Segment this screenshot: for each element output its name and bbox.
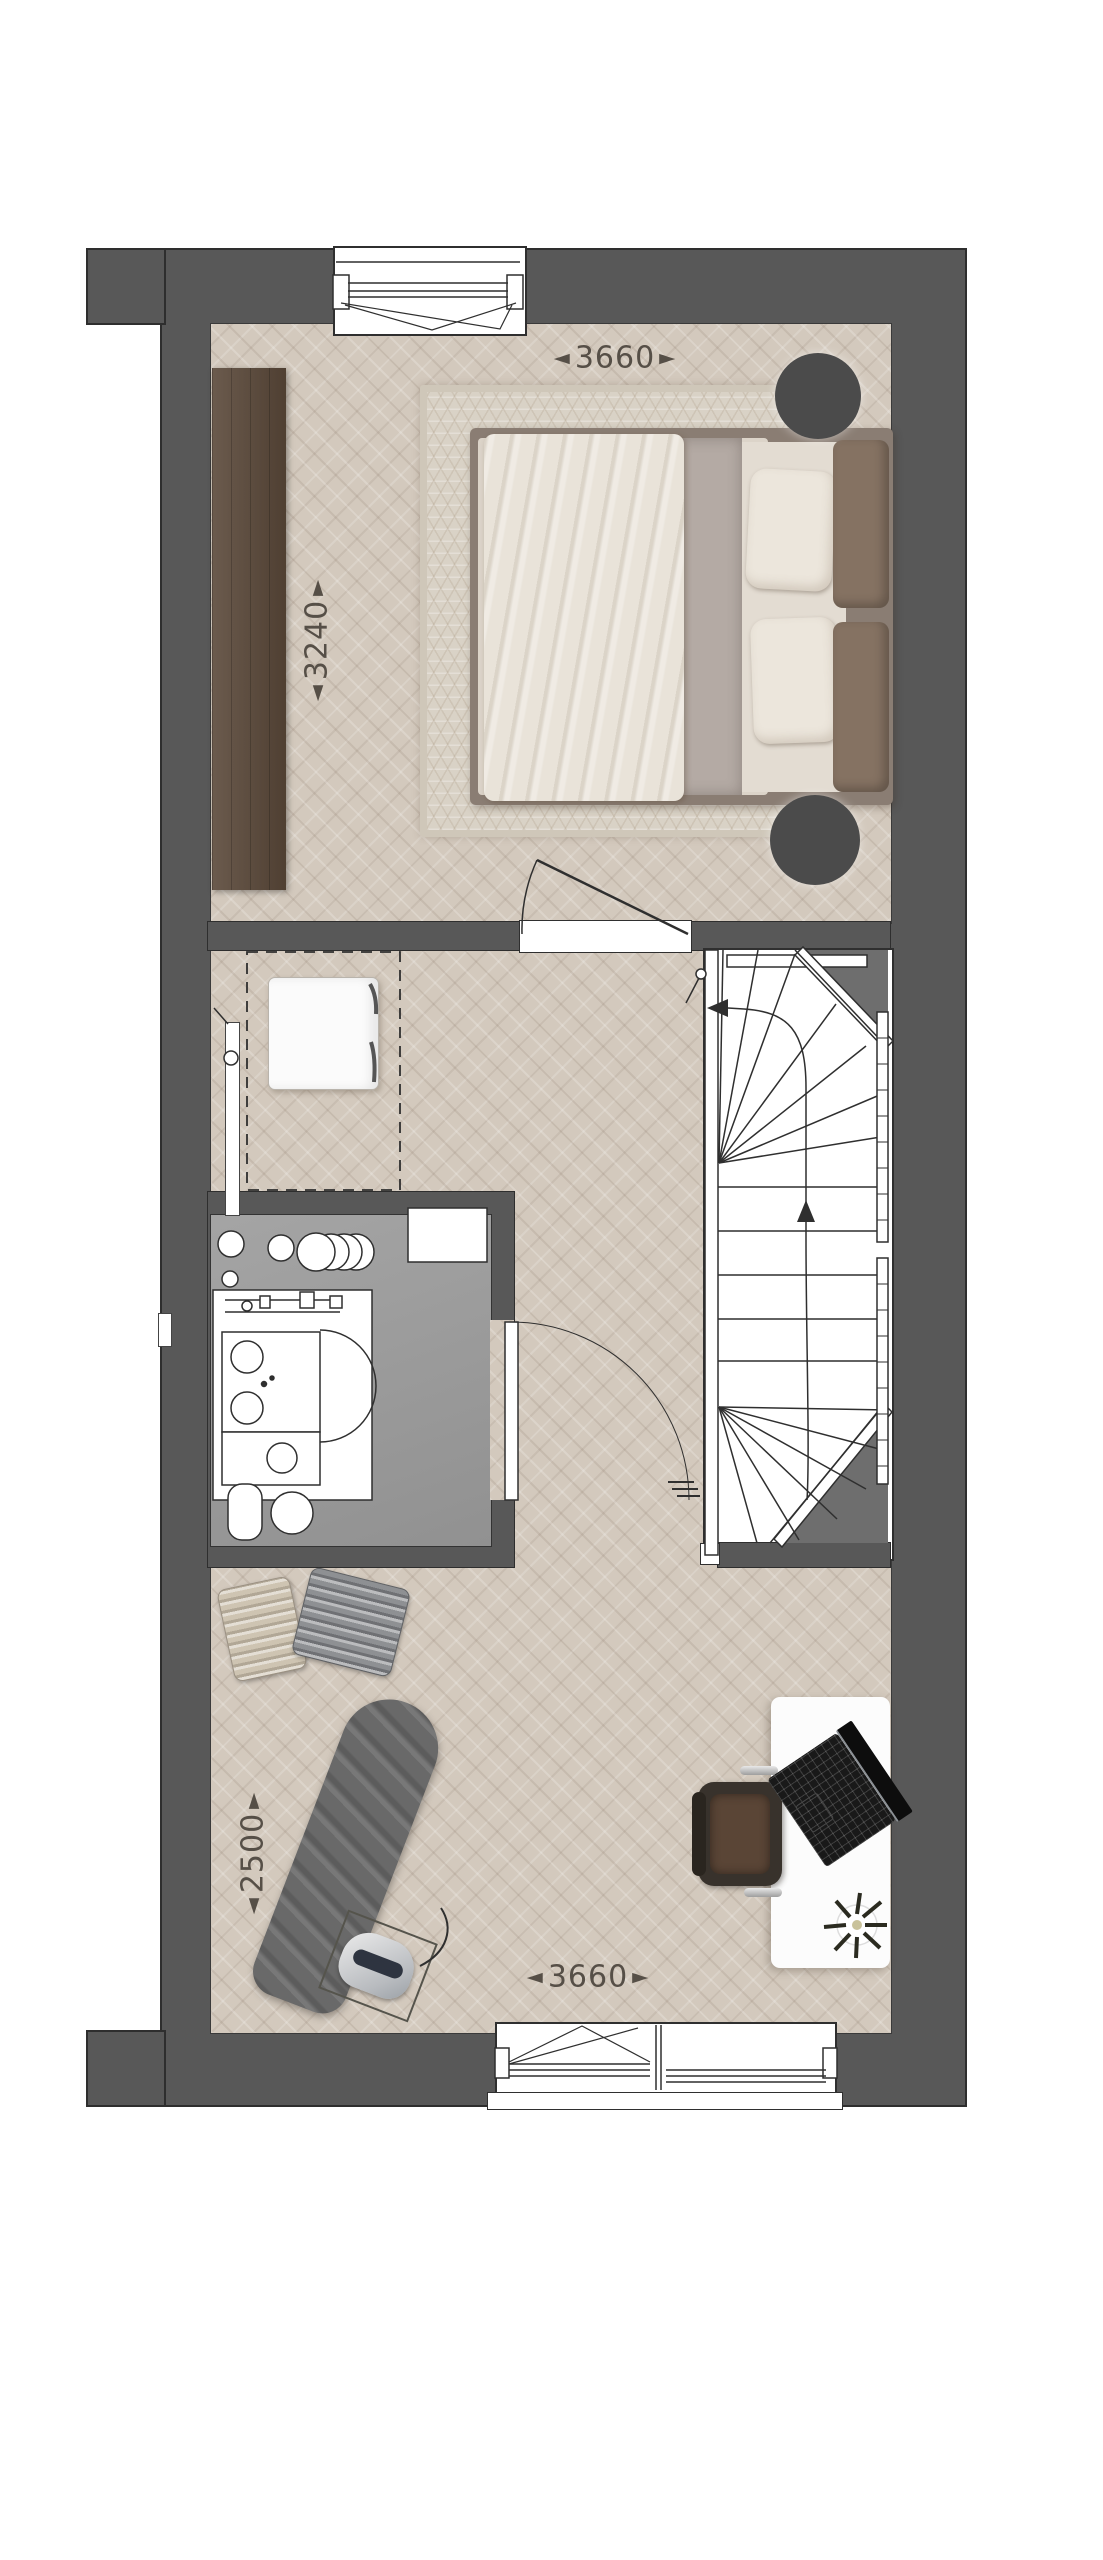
dim-arrow-left-icon: ◄ — [527, 1967, 544, 1988]
dimension-bottom: ◄ 3660 ► — [527, 1960, 650, 1995]
bed-gray-runner — [676, 438, 742, 795]
dim-arrow-left-icon: ◄ — [554, 348, 571, 369]
washing-machine — [268, 977, 379, 1090]
pillow — [745, 468, 837, 592]
dimension-top-value: 3660 — [575, 341, 655, 376]
tech-room-floor — [210, 1214, 492, 1547]
dimension-left: ◄ 3240 ► — [300, 579, 335, 702]
stair-end-post — [700, 1543, 720, 1565]
wall-stub-top-left — [88, 250, 164, 323]
dimension-lower-left: ◄ 2500 ► — [236, 1792, 271, 1915]
study-window — [495, 2022, 837, 2096]
desk-chair-seat — [710, 1794, 770, 1874]
dim-arrow-right-icon: ► — [243, 1792, 264, 1809]
nightstand — [770, 795, 860, 885]
desk-chair-backrest — [692, 1792, 706, 1876]
wardrobe — [212, 368, 286, 890]
dim-arrow-right-icon: ► — [632, 1967, 649, 1988]
dim-arrow-right-icon: ► — [307, 579, 328, 596]
chair-armrest — [740, 1766, 778, 1775]
dimension-top: ◄ 3660 ► — [554, 341, 677, 376]
dimension-left-value: 3240 — [300, 600, 335, 680]
bedroom-window — [333, 246, 527, 336]
standpipe — [225, 1022, 240, 1216]
dim-arrow-left-icon: ◄ — [243, 1897, 264, 1914]
stair-bottom-wall — [718, 1543, 890, 1567]
dimension-bottom-value: 3660 — [548, 1960, 628, 1995]
nightstand — [775, 353, 861, 439]
dim-arrow-right-icon: ► — [659, 348, 676, 369]
wall-niche — [158, 1313, 172, 1347]
headboard-cushion — [833, 622, 889, 792]
tech-door-opening — [490, 1320, 514, 1500]
bedroom-door-opening — [519, 920, 692, 953]
bed-duvet — [484, 434, 684, 801]
study-window-sill — [487, 2092, 843, 2110]
floor-plan: ◄ 3660 ► ◄ 3240 ► ◄ 2500 ► ◄ 3660 ► — [0, 0, 1103, 2560]
dim-arrow-left-icon: ◄ — [307, 684, 328, 701]
dimension-lower-left-value: 2500 — [236, 1813, 271, 1893]
wall-stub-bottom-left — [88, 2032, 164, 2105]
pillow — [750, 617, 840, 745]
chair-armrest — [744, 1888, 782, 1897]
stairwell — [703, 948, 894, 1561]
headboard-cushion — [833, 440, 889, 608]
